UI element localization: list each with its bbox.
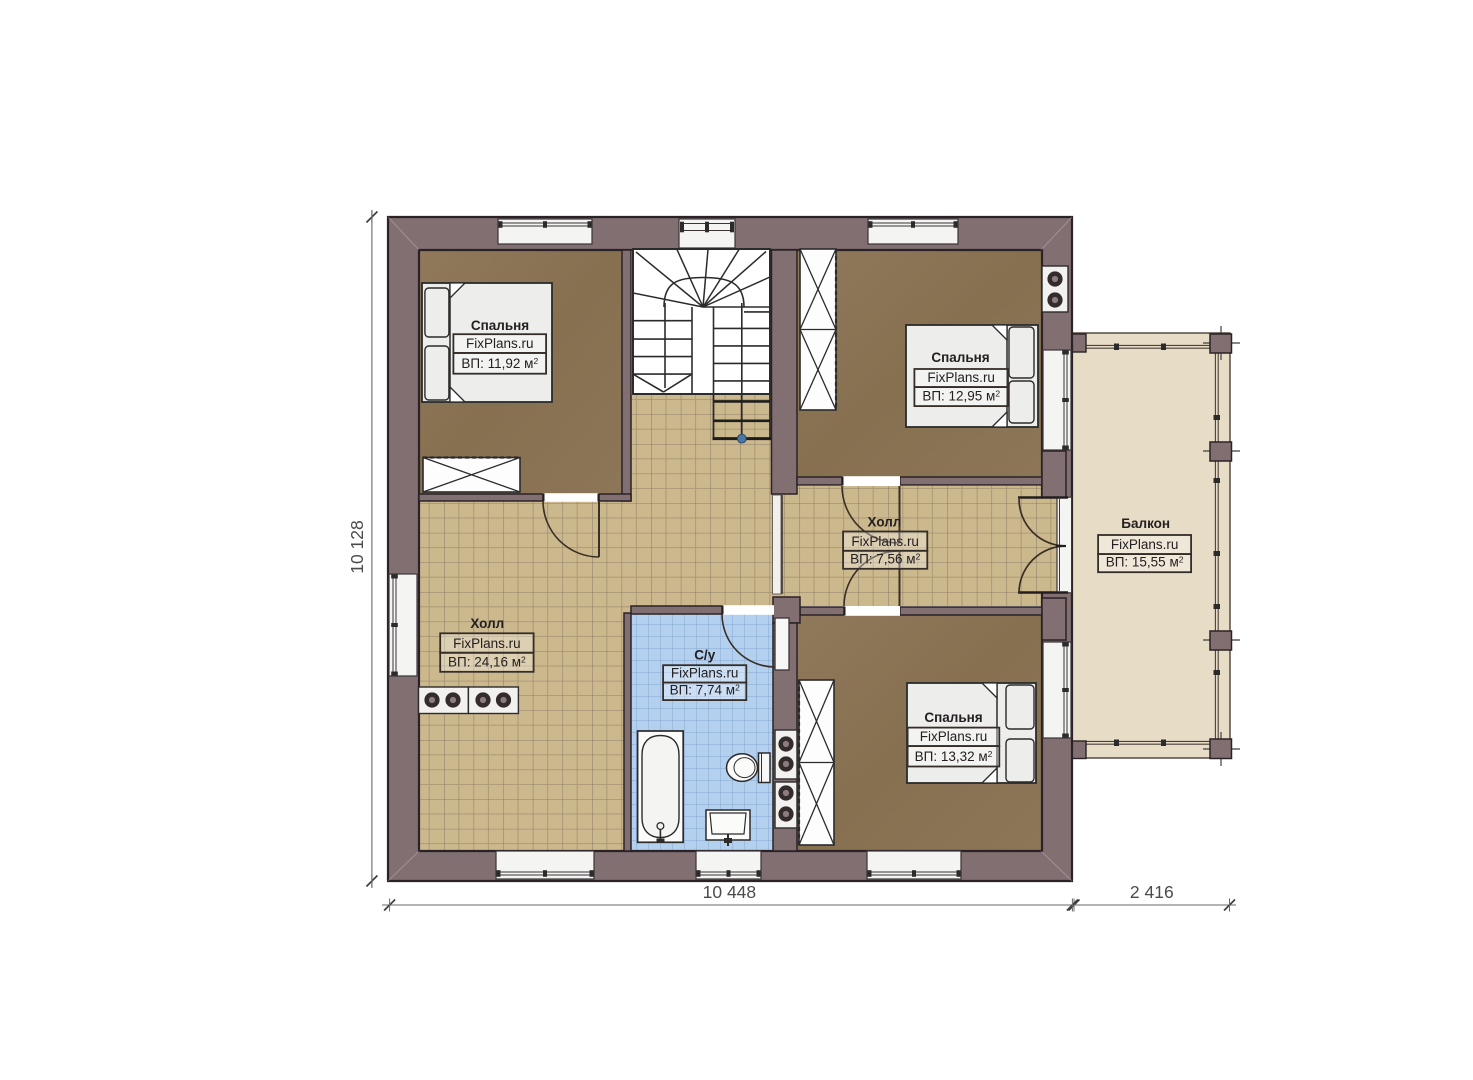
- svg-text:Балкон: Балкон: [1121, 516, 1170, 531]
- svg-text:ВП: 13,32 м2: ВП: 13,32 м2: [915, 749, 993, 764]
- svg-text:Спальня: Спальня: [924, 710, 982, 725]
- svg-text:10 448: 10 448: [703, 882, 757, 902]
- svg-text:FixPlans.ru: FixPlans.ru: [453, 636, 521, 651]
- svg-text:ВП: 7,56 м2: ВП: 7,56 м2: [850, 551, 921, 566]
- svg-text:ВП: 15,55 м2: ВП: 15,55 м2: [1106, 555, 1184, 570]
- svg-text:Спальня: Спальня: [931, 350, 989, 365]
- svg-text:ВП: 11,92 м2: ВП: 11,92 м2: [461, 356, 538, 371]
- svg-text:Холл: Холл: [868, 515, 902, 530]
- svg-text:10 128: 10 128: [347, 520, 367, 574]
- svg-text:ВП: 24,16 м2: ВП: 24,16 м2: [448, 654, 526, 669]
- svg-text:FixPlans.ru: FixPlans.ru: [1111, 537, 1179, 552]
- svg-text:FixPlans.ru: FixPlans.ru: [920, 729, 988, 744]
- svg-text:2 416: 2 416: [1130, 882, 1174, 902]
- svg-text:FixPlans.ru: FixPlans.ru: [927, 370, 995, 385]
- svg-text:FixPlans.ru: FixPlans.ru: [466, 336, 534, 351]
- svg-text:Спальня: Спальня: [471, 318, 529, 333]
- svg-text:С/у: С/у: [694, 648, 716, 663]
- svg-text:FixPlans.ru: FixPlans.ru: [851, 534, 919, 549]
- svg-text:ВП: 12,95 м2: ВП: 12,95 м2: [922, 389, 1000, 404]
- svg-text:ВП: 7,74 м2: ВП: 7,74 м2: [670, 683, 741, 698]
- svg-text:Холл: Холл: [470, 616, 504, 631]
- svg-text:FixPlans.ru: FixPlans.ru: [671, 666, 739, 681]
